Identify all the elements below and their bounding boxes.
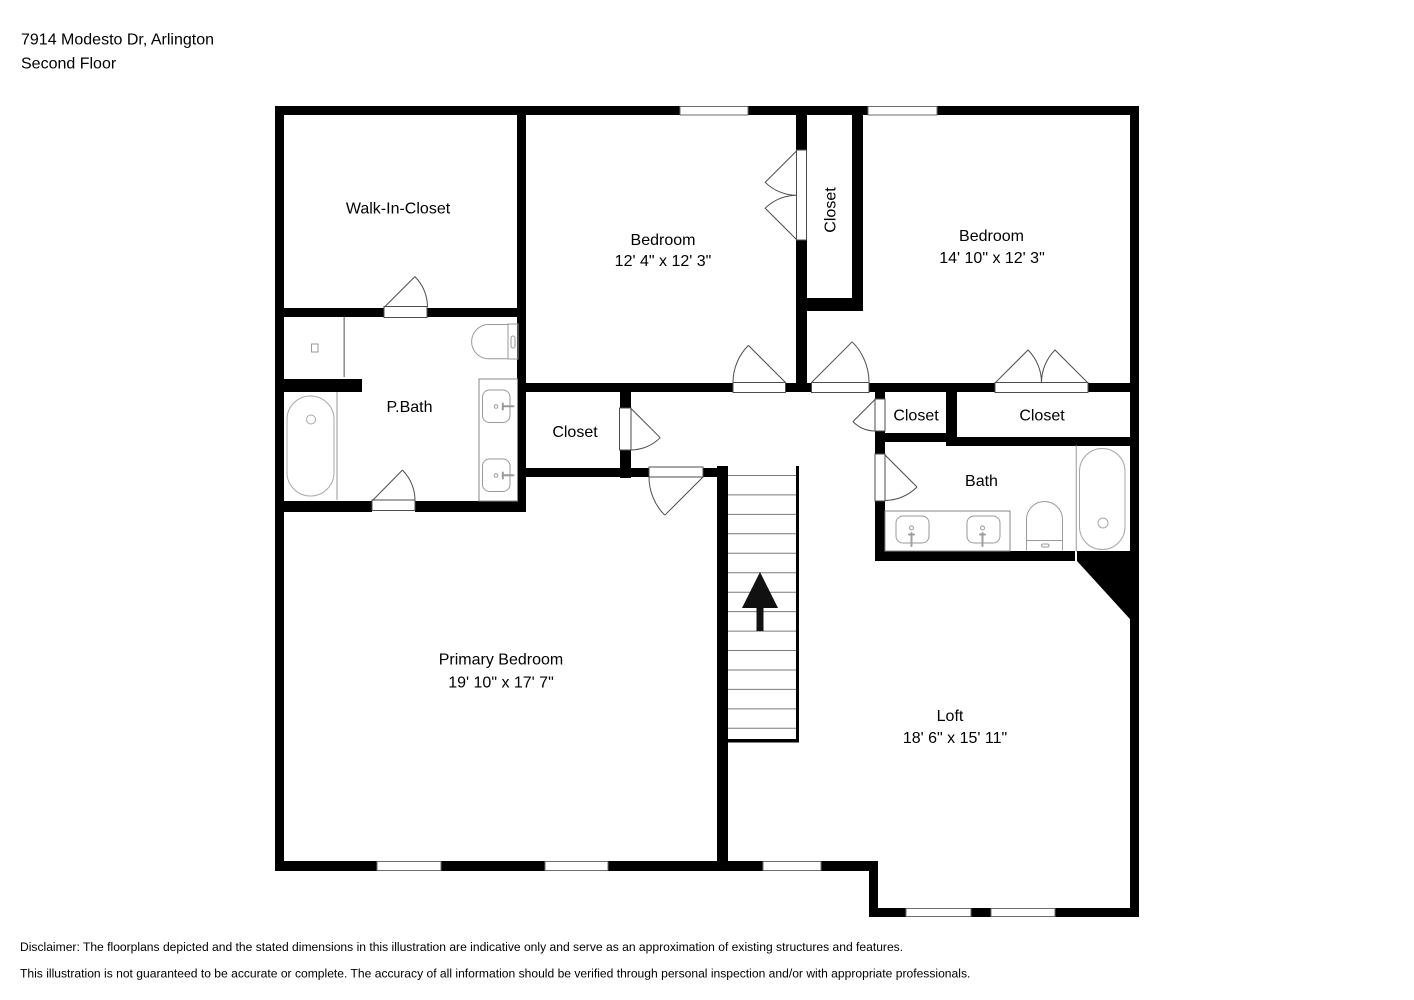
svg-text:Bath: Bath <box>965 473 998 490</box>
svg-text:Second Floor: Second Floor <box>21 56 117 73</box>
svg-text:Closet: Closet <box>823 187 840 233</box>
svg-text:Bedroom: Bedroom <box>631 232 696 249</box>
svg-text:14' 10" x 12' 3": 14' 10" x 12' 3" <box>939 250 1045 267</box>
svg-text:Closet: Closet <box>893 408 939 425</box>
svg-text:Closet: Closet <box>1019 408 1065 425</box>
svg-text:P.Bath: P.Bath <box>387 399 433 416</box>
svg-text:Disclaimer: The floorplans dep: Disclaimer: The floorplans depicted and … <box>20 940 903 954</box>
svg-text:Primary Bedroom: Primary Bedroom <box>439 652 563 669</box>
svg-text:12' 4" x 12' 3": 12' 4" x 12' 3" <box>615 253 712 270</box>
svg-text:Walk-In-Closet: Walk-In-Closet <box>346 201 451 218</box>
svg-text:Loft: Loft <box>937 708 964 725</box>
svg-text:7914 Modesto Dr, Arlington: 7914 Modesto Dr, Arlington <box>21 32 214 49</box>
svg-text:Bedroom: Bedroom <box>959 228 1024 245</box>
svg-text:This illustration is not guara: This illustration is not guaranteed to b… <box>20 967 970 981</box>
svg-text:18' 6" x 15' 11": 18' 6" x 15' 11" <box>903 730 1007 747</box>
svg-text:19' 10" x 17' 7": 19' 10" x 17' 7" <box>448 675 554 692</box>
svg-text:Closet: Closet <box>552 424 598 441</box>
